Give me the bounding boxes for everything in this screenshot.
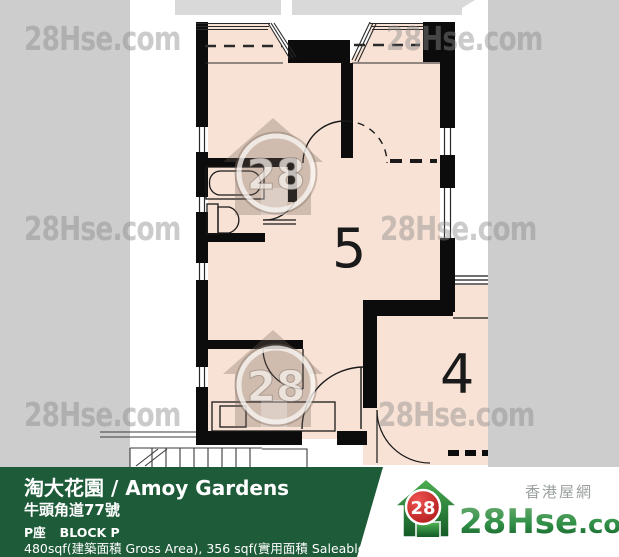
logo-badge: 28	[406, 490, 440, 524]
corridor-outline	[262, 449, 307, 467]
logo-tagline: 香港屋網	[525, 483, 593, 501]
estate-area-info: 480sqf(建築面積 Gross Area), 356 sqf(實用面積 Sa…	[24, 538, 403, 557]
estate-title: 淘大花園 / Amoy Gardens	[24, 472, 289, 501]
room-label-4: 4	[440, 348, 474, 402]
svg-text:28: 28	[247, 362, 305, 411]
estate-address: 牛頭角道77號	[24, 499, 120, 520]
28hse-logo: 28 28Hse.com 香港屋網	[393, 475, 619, 549]
logo-brand-text: 28Hse.com	[459, 502, 619, 542]
svg-text:28: 28	[410, 498, 435, 519]
unit4-dashed-line	[448, 450, 488, 456]
room-label-5: 5	[332, 222, 366, 276]
svg-text:28: 28	[247, 150, 305, 199]
footer-bar: 淘大花園 / Amoy Gardens 牛頭角道77號 P座BLOCK P 48…	[0, 467, 619, 557]
floorplan-page: 28 28 28Hse.com 28Hse.com 28Hse.com 28Hs…	[0, 0, 619, 557]
floor-plan: 28 28	[0, 0, 619, 467]
adjacent-unit-ghosts	[175, 0, 475, 15]
